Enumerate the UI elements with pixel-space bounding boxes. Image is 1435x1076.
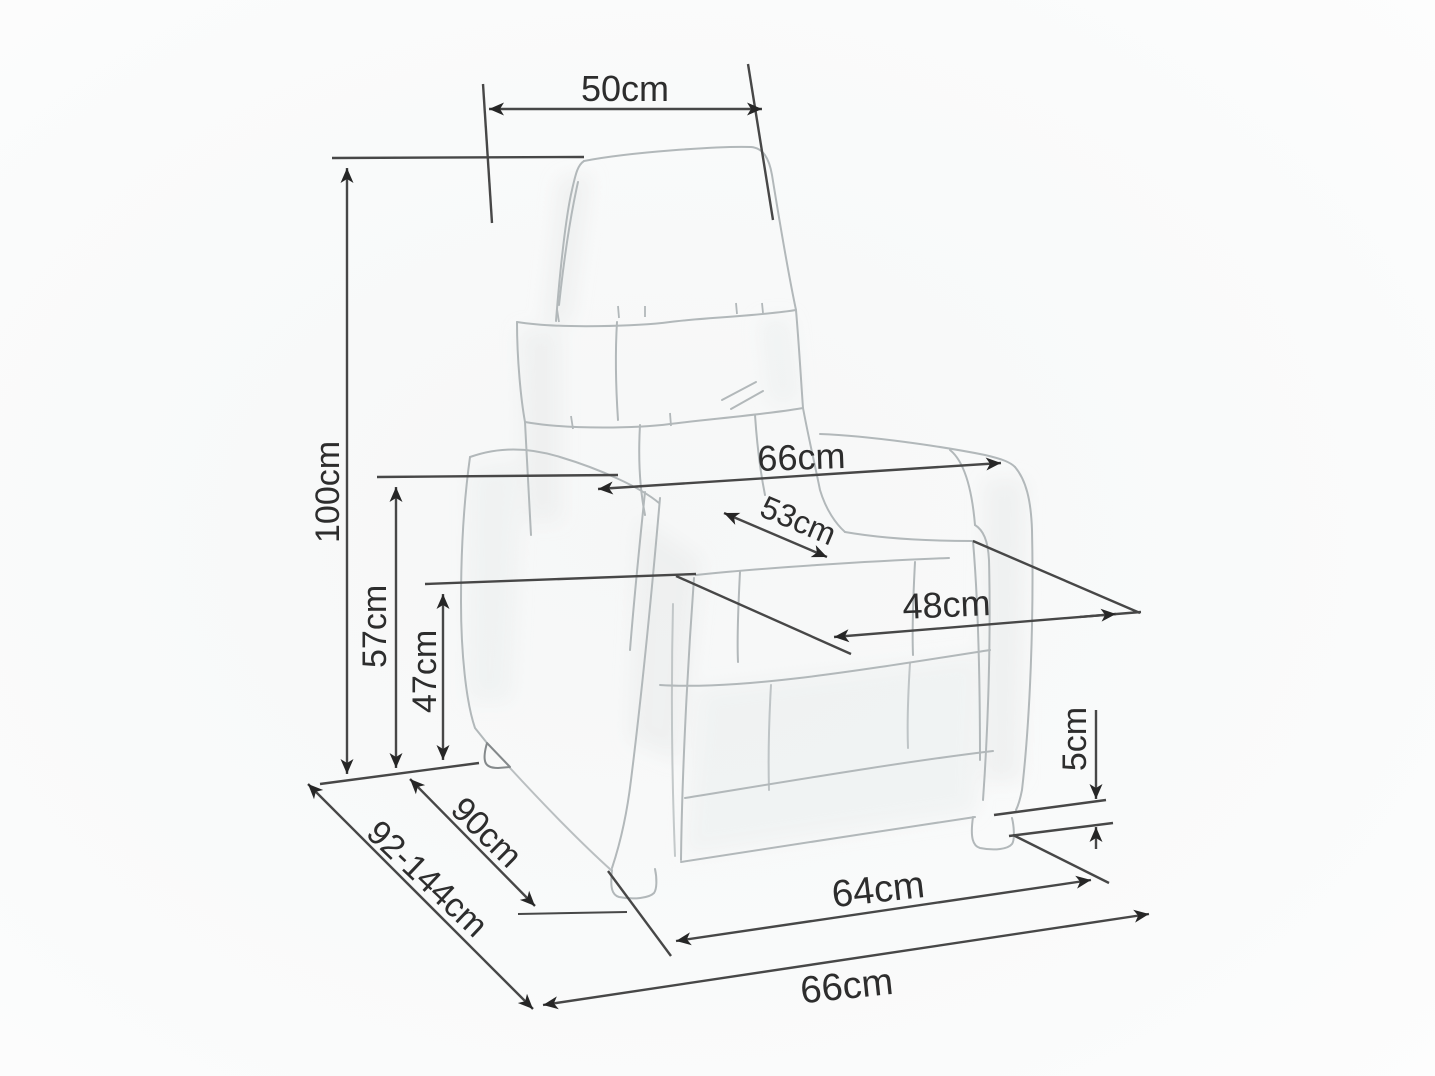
svg-text:48cm: 48cm	[902, 582, 992, 627]
svg-text:47cm: 47cm	[406, 630, 444, 713]
svg-text:50cm: 50cm	[581, 68, 669, 109]
svg-text:100cm: 100cm	[309, 441, 347, 543]
svg-text:5cm: 5cm	[1056, 707, 1094, 771]
svg-text:57cm: 57cm	[356, 585, 394, 668]
svg-text:66cm: 66cm	[757, 435, 846, 479]
